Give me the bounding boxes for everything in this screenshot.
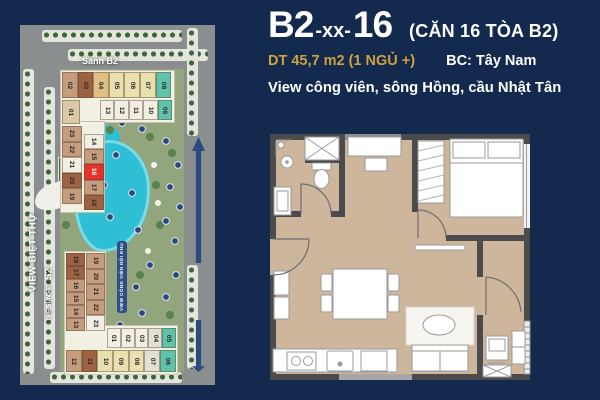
unit-code-number: 16 xyxy=(353,4,392,46)
park-view-badge: VIEW CÔNG VIÊN NỘI KHU xyxy=(117,241,127,313)
s2-upper-units: 0102030405 xyxy=(107,328,176,348)
unit-02: 02 xyxy=(62,72,78,98)
b2-outer-units: 2322212019 xyxy=(62,126,82,204)
site-map: 02030405060708 01 1312111009 2322212019 … xyxy=(20,25,215,385)
unit-09: 09 xyxy=(113,350,129,372)
unit-05: 05 xyxy=(109,72,125,98)
kitchen-sink xyxy=(327,351,353,371)
unit-15: 15 xyxy=(84,149,104,164)
header: B2 -xx- 16 (CĂN 16 TÒA B2) DT 45,7 m2 (1… xyxy=(268,4,594,96)
s2-lower-units: 12111009080706 xyxy=(66,350,176,372)
unit-01: 01 xyxy=(107,328,121,348)
unit-13: 13 xyxy=(66,318,85,331)
unit-21: 21 xyxy=(62,157,82,173)
b2-top-units: 02030405060708 xyxy=(62,72,171,98)
unit-07: 07 xyxy=(144,350,160,372)
unit-code-middle: -xx- xyxy=(315,20,351,43)
unit-16: 16 xyxy=(66,279,85,292)
unit-13: 13 xyxy=(100,100,114,120)
pillow xyxy=(453,142,485,158)
unit-11: 11 xyxy=(82,350,98,372)
s2-code: S2 xyxy=(44,268,55,280)
shower-head xyxy=(278,142,284,148)
unit-presentation-slide: { "colors":{"bg":"#13294d","gold":"#cda3… xyxy=(0,0,600,400)
unit-03: 03 xyxy=(135,328,149,348)
unit-23: 23 xyxy=(62,126,82,142)
unit-12: 12 xyxy=(114,100,128,120)
cabinet-fridge xyxy=(274,271,289,319)
unit-16: 16 xyxy=(84,164,104,179)
coffee-table xyxy=(423,315,455,335)
unit-specs: DT 45,7 m2 (1 NGỦ +) BC: Tây Nam xyxy=(268,53,594,69)
unit-04: 04 xyxy=(148,328,162,348)
unit-code-prefix: B2 xyxy=(268,4,313,46)
unit-21: 21 xyxy=(86,284,105,300)
lobby-label: Sảnh B2 xyxy=(82,56,118,66)
dining-table xyxy=(333,269,387,319)
unit-19: 19 xyxy=(62,188,82,204)
unit-01: 01 xyxy=(62,100,80,124)
unit-23: 23 xyxy=(86,315,105,331)
unit-20: 20 xyxy=(86,269,105,285)
unit-06: 06 xyxy=(160,350,176,372)
unit-12: 12 xyxy=(66,350,82,372)
unit-17: 17 xyxy=(84,180,104,195)
balcony-direction: BC: Tây Nam xyxy=(446,53,536,69)
unit-08: 08 xyxy=(156,72,172,98)
unit-06: 06 xyxy=(124,72,140,98)
unit-18: 18 xyxy=(66,253,85,266)
view-villas-label: VIEW BIỆT THỰ xyxy=(28,203,39,303)
b2-unit-01: 01 xyxy=(62,100,80,124)
unit-19: 19 xyxy=(86,253,105,269)
view-description: View công viên, sông Hồng, cầu Nhật Tân xyxy=(268,80,594,96)
sunset-s2-label: THE SUNSETS2 xyxy=(44,257,55,333)
unit-18: 18 xyxy=(84,195,104,210)
dining-set xyxy=(321,269,399,319)
unit-17: 17 xyxy=(66,266,85,279)
tv-console xyxy=(415,245,465,250)
unit-08: 08 xyxy=(129,350,145,372)
unit-15: 15 xyxy=(66,292,85,305)
unit-04: 04 xyxy=(93,72,109,98)
unit-05: 05 xyxy=(162,328,176,348)
toilet-tank xyxy=(312,163,331,170)
unit-10: 10 xyxy=(143,100,157,120)
unit-14: 14 xyxy=(66,305,85,318)
b2-inner-units: 1415161718 xyxy=(84,134,104,210)
b2-mid-units: 1312111009 xyxy=(100,100,172,120)
unit-02: 02 xyxy=(121,328,135,348)
unit-code: B2 -xx- 16 (CĂN 16 TÒA B2) xyxy=(268,4,594,46)
pillow xyxy=(488,142,520,158)
unit-code-note: (CĂN 16 TÒA B2) xyxy=(409,21,558,42)
floor-plan xyxy=(267,131,533,383)
unit-07: 07 xyxy=(140,72,156,98)
unit-22: 22 xyxy=(62,142,82,158)
s2-inner-units: 1920212223 xyxy=(86,253,105,331)
living-area xyxy=(406,307,474,371)
s2-outer-units: 181716151413 xyxy=(66,253,85,331)
unit-03: 03 xyxy=(78,72,94,98)
unit-11: 11 xyxy=(129,100,143,120)
kitchen xyxy=(273,349,397,372)
unit-14: 14 xyxy=(84,134,104,149)
unit-09: 09 xyxy=(158,100,172,120)
unit-20: 20 xyxy=(62,173,82,189)
toilet-bowl xyxy=(314,170,329,189)
counter-module xyxy=(361,351,387,371)
unit-22: 22 xyxy=(86,300,105,316)
unit-area: DT 45,7 m2 (1 NGỦ +) xyxy=(268,53,415,69)
unit-10: 10 xyxy=(97,350,113,372)
